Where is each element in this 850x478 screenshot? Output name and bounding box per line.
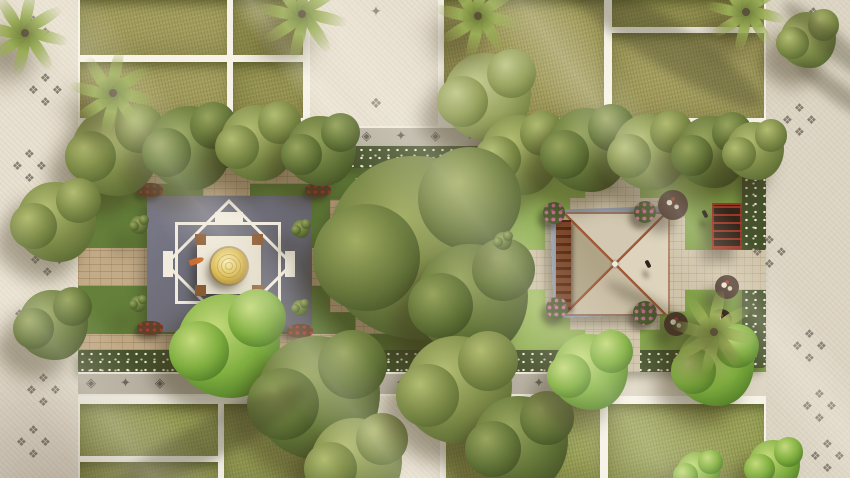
shrub: [292, 220, 310, 238]
tree: [726, 122, 784, 180]
tile-motif-cluster: ❖❖❖❖: [16, 424, 52, 460]
tile-motif-cluster: ❖❖❖❖: [12, 148, 48, 184]
grass-panel: [80, 404, 218, 456]
roof-finial: [612, 261, 618, 267]
step-tab-west: [163, 251, 173, 277]
cafe-table-patio: [658, 190, 688, 220]
gold-dome: [211, 248, 247, 284]
tile-motif-cluster: ❖❖❖❖: [810, 438, 846, 474]
tree: [18, 290, 88, 360]
pink-flower-bush: [546, 297, 568, 319]
tree: [552, 334, 628, 410]
shrine-corner-trim: [252, 234, 263, 245]
pergola-bench: [712, 203, 742, 250]
tile-motif-cluster: ❖❖❖❖: [802, 388, 838, 424]
grass-panel: [80, 462, 218, 478]
shrub: [494, 232, 512, 250]
garden-aerial-render: Top-down 3D architectural rendering of a…: [0, 0, 850, 478]
fern-plant: [748, 440, 800, 478]
grass-panel: [80, 0, 227, 55]
shrub: [130, 216, 148, 234]
tree: [780, 12, 836, 68]
palm-tree: [706, 0, 786, 52]
palm-tree: [672, 290, 756, 374]
shrine-corner-trim: [195, 285, 206, 296]
tile-motif-cluster: ❖❖❖❖: [752, 234, 788, 270]
pink-flower-bush: [543, 202, 565, 224]
shrub: [130, 296, 146, 312]
shrub: [292, 300, 308, 316]
tree: [16, 182, 96, 262]
pink-flower-bush: [634, 201, 656, 223]
shrine-corner-trim: [195, 234, 206, 245]
tile-motif-cluster: ❖❖❖❖: [792, 328, 828, 364]
step-tab-east: [285, 251, 295, 277]
walkway-tile-motifs: ✦ ❖ ✦: [368, 4, 384, 124]
tree: [286, 116, 356, 186]
tile-motif-cluster: ❖❖❖❖: [28, 72, 64, 108]
palm-tree: [258, 0, 346, 58]
pink-flower-bush: [633, 301, 657, 325]
tree: [472, 396, 568, 478]
red-flower-bed: [137, 321, 163, 335]
step-tab-north: [215, 212, 243, 222]
tile-motif-cluster: ❖❖❖❖: [782, 102, 818, 138]
palm-tree: [0, 0, 68, 76]
tile-motif-cluster: ❖❖❖❖: [26, 372, 62, 408]
palm-tree: [70, 50, 156, 136]
gold-dome-shrine: [197, 236, 261, 294]
palm-tree: [436, 0, 520, 58]
timber-pavilion: [552, 202, 674, 324]
